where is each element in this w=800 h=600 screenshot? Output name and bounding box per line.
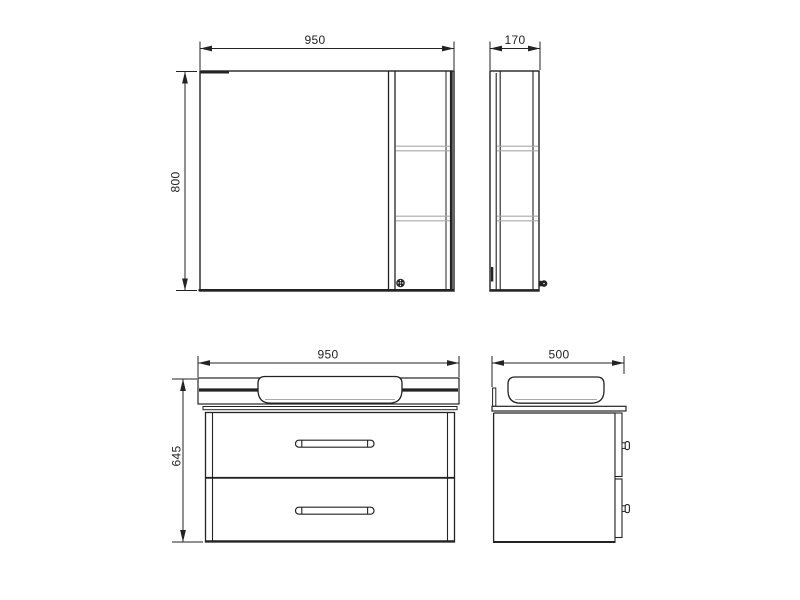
view-mirror-cabinet-side: 170 [490, 33, 547, 291]
door-knob [396, 279, 405, 288]
dimension-mirror-depth: 170 [490, 33, 540, 70]
counter-underside-strip [203, 407, 457, 410]
dimension-label-vanity-height: 645 [170, 446, 184, 467]
dimension-label-vanity-depth: 500 [549, 348, 570, 362]
handle-bar [296, 507, 375, 514]
drawer-handle-top [296, 440, 375, 447]
handle-cap [625, 505, 629, 513]
countertop-side [492, 406, 626, 411]
shelf-lines-side [497, 146, 539, 221]
furniture-dimension-drawing: 950 800 [0, 0, 800, 600]
drawer-handle-bottom [296, 507, 375, 514]
side-knob [539, 280, 548, 287]
mirror-side-outline [490, 71, 539, 291]
view-mirror-cabinet-front: 950 800 [169, 33, 455, 291]
view-vanity-side: 500 [492, 348, 629, 543]
dimension-label-mirror-depth: 170 [505, 33, 526, 47]
handle-bar [296, 440, 375, 447]
dimension-mirror-height: 800 [169, 72, 198, 291]
dimension-label-mirror-width: 950 [305, 33, 326, 47]
shelf-lines [396, 146, 451, 221]
dimension-label-mirror-height: 800 [169, 172, 183, 193]
backsplash-side [493, 388, 496, 406]
drawer-front-top-panel [615, 413, 622, 477]
dimension-vanity-width: 950 [198, 348, 459, 378]
technical-drawing-page: 950 800 [0, 0, 800, 600]
door-edge-mark [491, 267, 493, 282]
handle-cap [625, 442, 629, 450]
mirror-cabinet-outline [200, 71, 454, 291]
side-handle-bottom [622, 505, 629, 513]
dimension-mirror-width: 950 [200, 33, 454, 70]
side-handle-top [622, 442, 629, 450]
drawer-front-bottom-panel [615, 479, 622, 538]
dimension-label-vanity-width: 950 [318, 348, 339, 362]
view-vanity-front: 950 645 [170, 348, 460, 543]
